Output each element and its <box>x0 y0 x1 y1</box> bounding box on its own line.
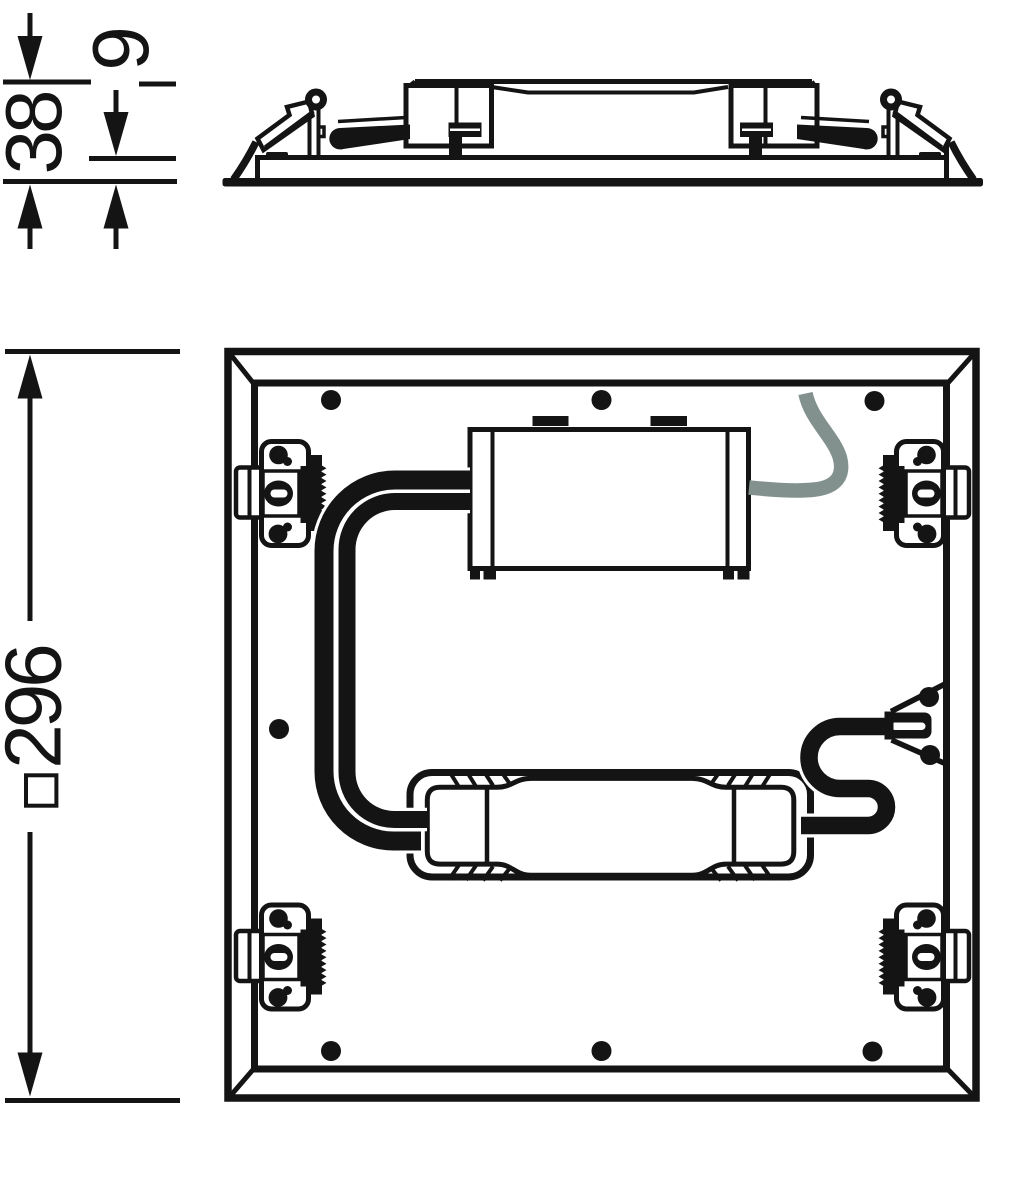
svg-text:9: 9 <box>76 30 165 71</box>
svg-text:38: 38 <box>0 92 78 174</box>
svg-text:296: 296 <box>0 647 78 769</box>
